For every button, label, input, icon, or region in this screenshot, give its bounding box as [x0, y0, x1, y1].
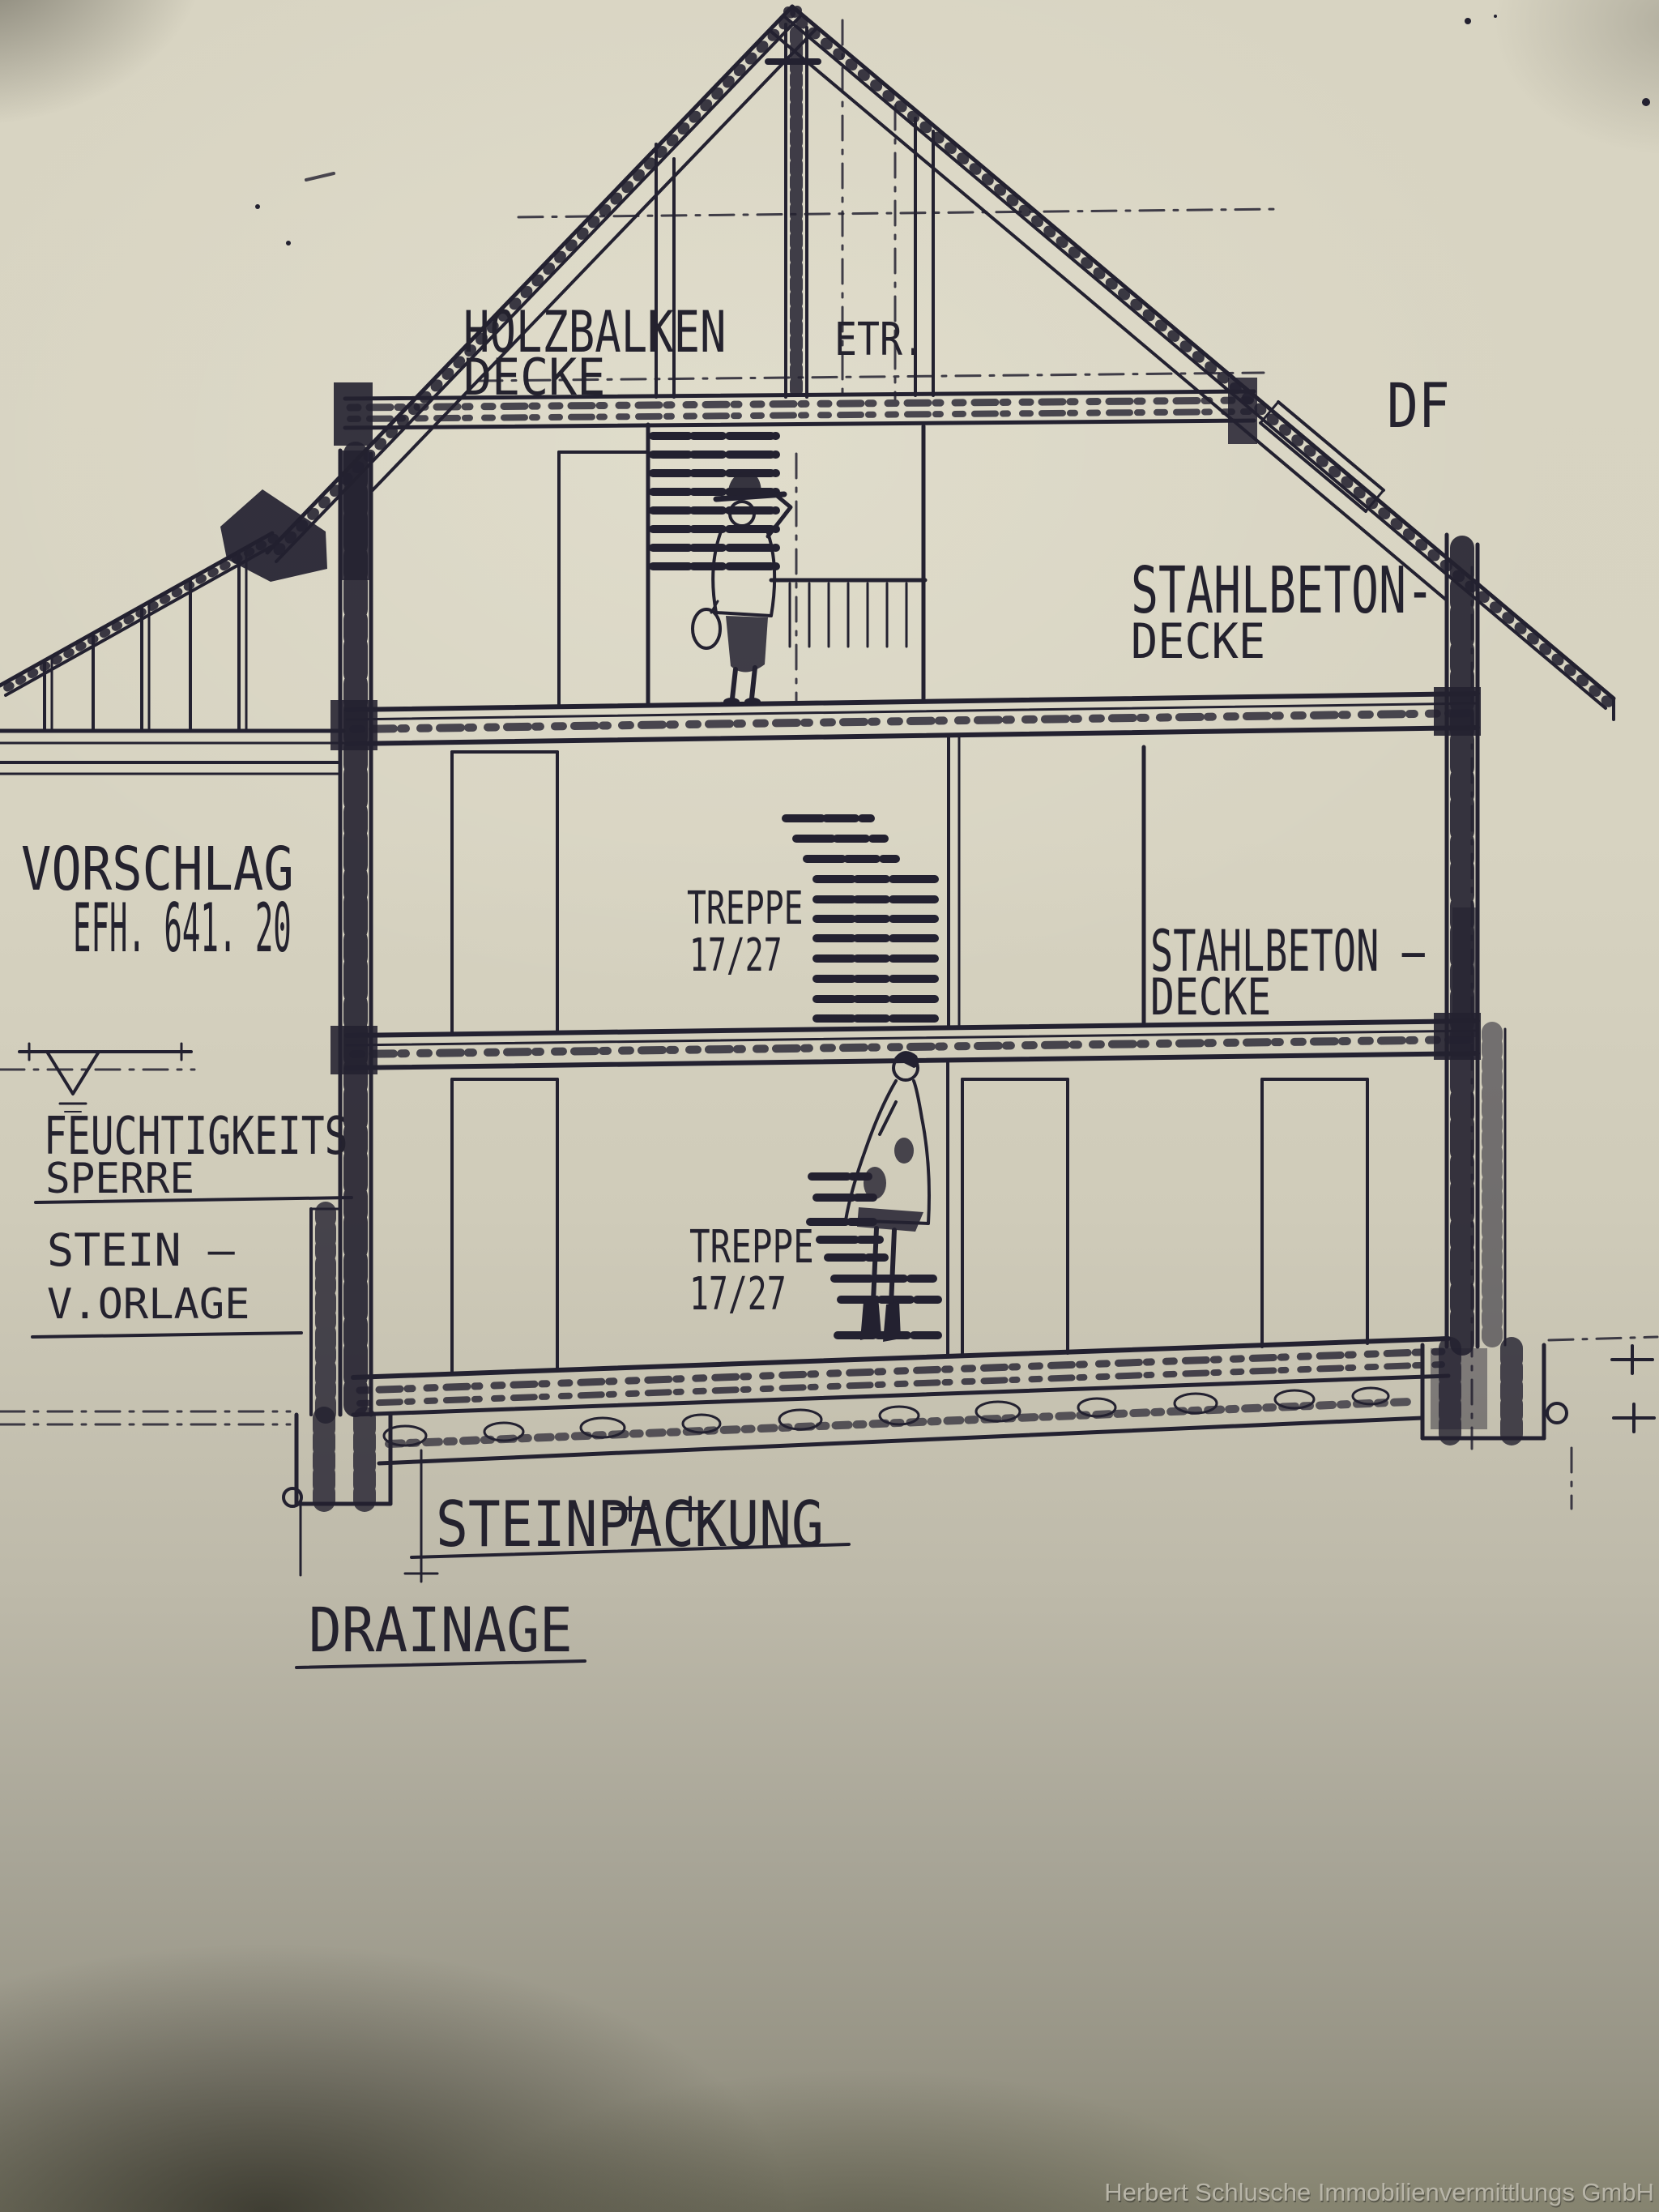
drainage-pipe-left	[284, 1488, 301, 1506]
side-wing-gable	[0, 489, 343, 774]
left-stone-facing	[311, 1209, 340, 1415]
label-stone-packing: STEINPACKUNG	[436, 1488, 824, 1562]
scanned-blueprint-photo: HOLZBALKEN DECKE ETR. DF STAHLBETON- DEC…	[0, 0, 1659, 2212]
left-footing	[0, 1411, 390, 1506]
benchmark-symbol	[0, 1044, 194, 1112]
right-stone-facing	[1492, 1029, 1505, 1345]
king-post	[786, 24, 807, 397]
label-stairs-lower-line1: TREPPE	[689, 1220, 814, 1273]
stair-flight-upper	[786, 818, 938, 1018]
label-drainage: DRAINAGE	[309, 1594, 573, 1666]
label-stairs-upper-line2: 17/27	[689, 930, 783, 982]
label-moisture-line2: SPERRE	[45, 1155, 194, 1204]
watermark: Herbert Schlusche Immobilienvermittlungs…	[1104, 2178, 1655, 2208]
upper-floor-slab	[331, 687, 1481, 750]
label-proposal-line2: EFH. 641. 20	[73, 890, 292, 968]
label-etr: ETR.	[834, 314, 925, 366]
label-slab-lower-line2: DECKE	[1150, 969, 1271, 1027]
label-df: DF	[1387, 370, 1450, 442]
paper-specks	[255, 15, 1650, 246]
label-stone-facing-line2: V.ORLAGE	[47, 1280, 249, 1329]
house-section-drawing: HOLZBALKEN DECKE ETR. DF STAHLBETON- DEC…	[0, 0, 1659, 2212]
label-stairs-upper-line1: TREPPE	[687, 882, 804, 935]
label-stone-facing-line1: STEIN –	[47, 1224, 236, 1276]
watermark-text: Herbert Schlusche Immobilienvermittlungs…	[1104, 2178, 1654, 2206]
label-attic-ceiling-line2: DECKE	[463, 348, 605, 407]
right-footing	[1422, 1337, 1657, 1438]
right-exterior-wall	[1447, 535, 1478, 1347]
label-stairs-lower-line2: 17/27	[689, 1268, 787, 1321]
drainage-pipe-right	[1547, 1403, 1567, 1423]
label-slab-upper-line2: DECKE	[1131, 613, 1265, 670]
left-exterior-wall	[340, 451, 371, 1415]
